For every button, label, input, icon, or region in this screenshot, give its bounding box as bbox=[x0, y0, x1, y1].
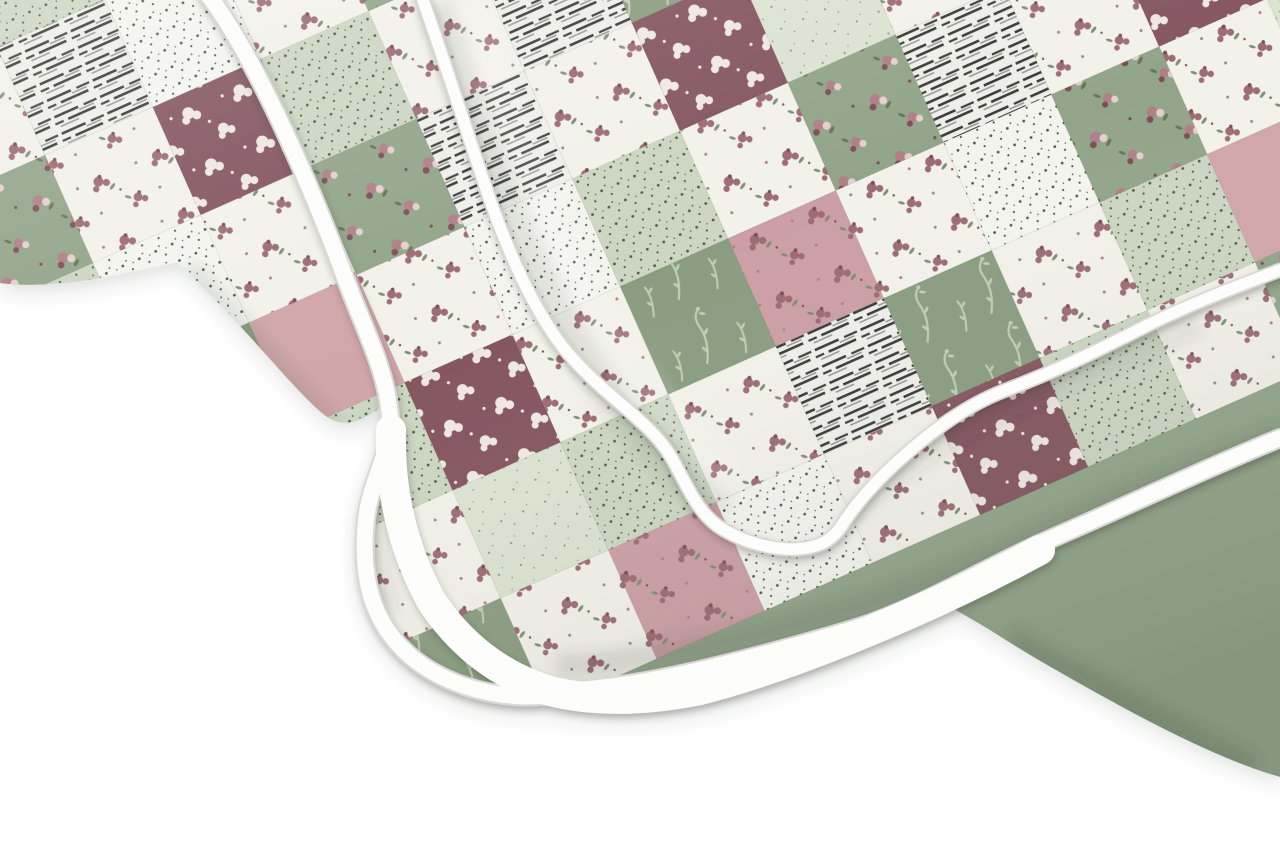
quilt-patch-print bbox=[81, 478, 238, 635]
quilt-patch bbox=[0, 263, 142, 420]
quilt-patch-print bbox=[0, 263, 142, 420]
quilt-patch-print bbox=[129, 586, 286, 743]
quilt-patch-print bbox=[33, 370, 190, 527]
product-photo bbox=[0, 0, 1280, 853]
quilt-patch bbox=[189, 430, 346, 587]
quilt-patch bbox=[33, 370, 190, 527]
quilt-product-image bbox=[0, 0, 1280, 853]
quilt bbox=[0, 0, 1280, 853]
quilt-patch-print bbox=[177, 694, 334, 851]
quilt-patch bbox=[177, 694, 334, 851]
quilt-patch-print bbox=[189, 430, 346, 587]
quilt-patch bbox=[81, 478, 238, 635]
quilt-patch bbox=[129, 586, 286, 743]
